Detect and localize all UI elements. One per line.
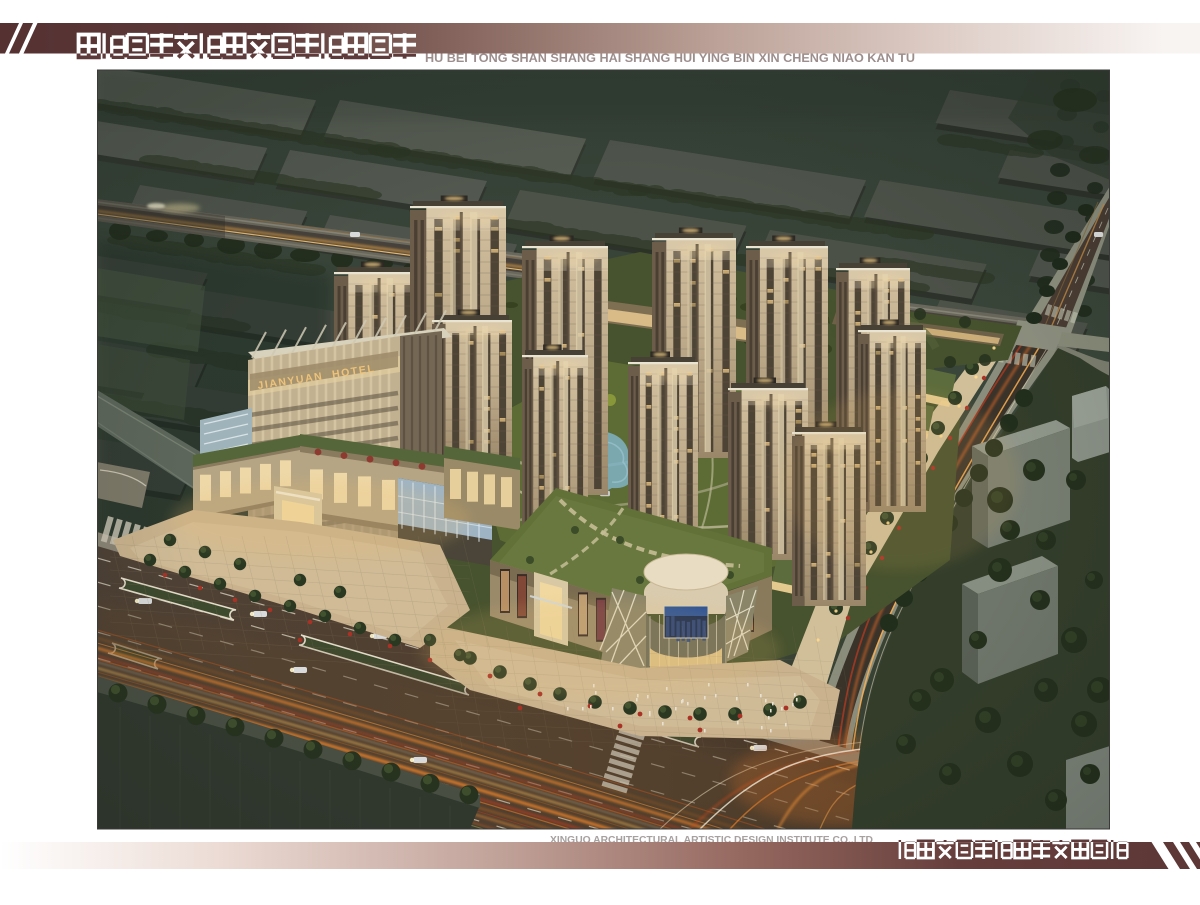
- svg-text:HU BEI TONG SHAN SHANG HAI SHA: HU BEI TONG SHAN SHANG HAI SHANG HUI YIN…: [425, 53, 915, 65]
